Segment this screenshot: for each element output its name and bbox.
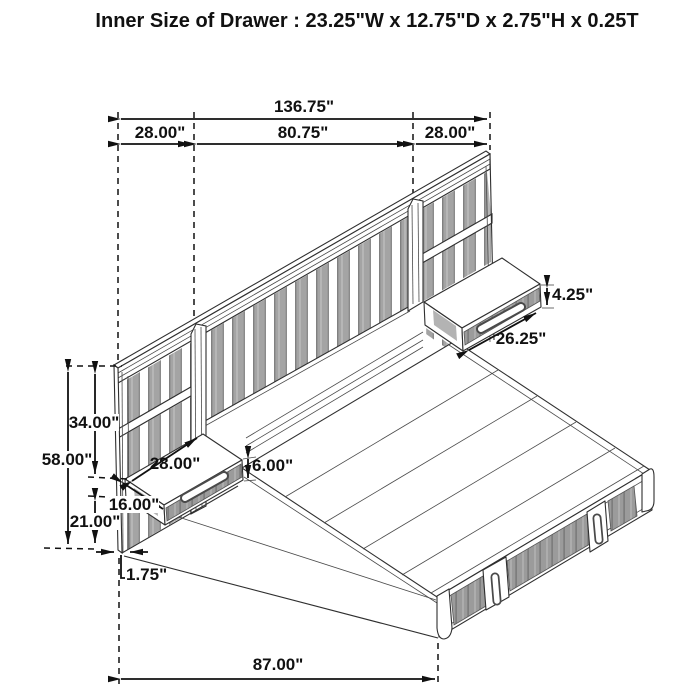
bed-assembly-diagram: Inner Size of Drawer : 23.25"W x 12.75"D… — [0, 0, 700, 700]
center-width-label: 80.75" — [278, 123, 329, 142]
left-nightstand-height-label: 6.00" — [252, 456, 293, 475]
bed-dimension-diagram-page: Inner Size of Drawer : 23.25"W x 12.75"D… — [0, 0, 700, 700]
nightstand-to-floor-label: 21.00" — [70, 512, 121, 531]
panel-height-label: 58.00" — [42, 450, 93, 469]
left-nightstand-width-label: 28.00" — [150, 454, 201, 473]
left-panel-width-label: 28.00" — [135, 123, 186, 142]
top-to-nightstand-label: 34.00" — [69, 413, 120, 432]
right-nightstand-width-label: 26.25" — [496, 329, 547, 348]
headboard-panel-divider-right — [408, 199, 423, 311]
thickness-leader-line — [121, 555, 125, 578]
platform-corner-post — [642, 469, 654, 512]
right-nightstand-height-label: 4.25" — [552, 285, 593, 304]
panel-thickness-label: 1.75" — [126, 565, 167, 584]
platform-length-label: 87.00" — [253, 655, 304, 674]
right-panel-width-label: 28.00" — [425, 123, 476, 142]
diagram-title: Inner Size of Drawer : 23.25"W x 12.75"D… — [95, 10, 638, 32]
left-nightstand-depth-label: 16.00" — [109, 495, 160, 514]
overall-width-label: 136.75" — [274, 97, 334, 116]
platform-corner-post — [437, 589, 452, 639]
